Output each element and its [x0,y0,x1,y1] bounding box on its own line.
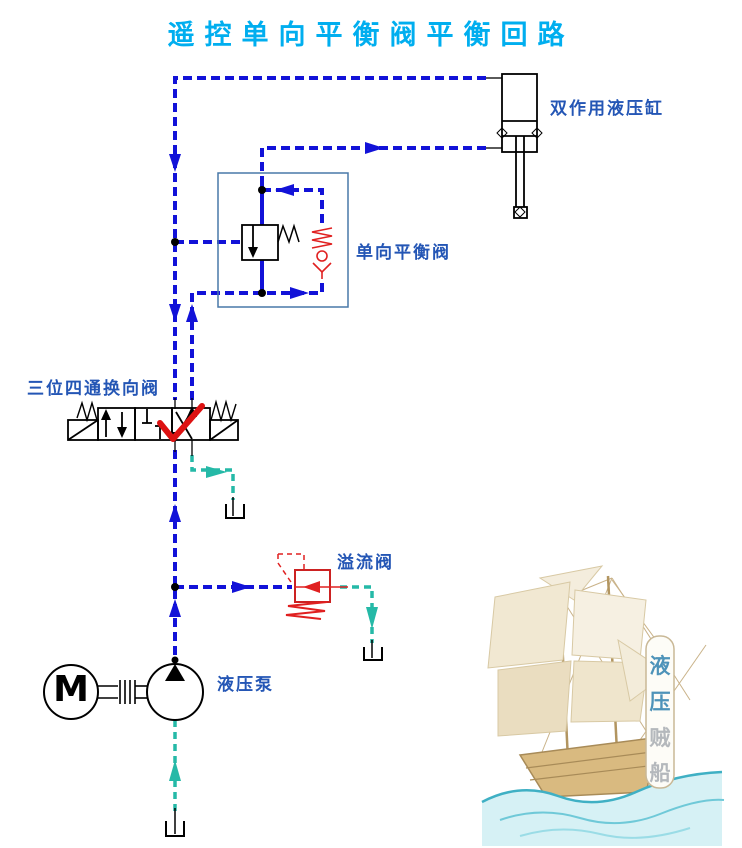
line-b-port-up [192,278,322,400]
arrow-down-icon [169,304,181,322]
spring-icon [77,403,97,420]
watermark-char: 液 [645,650,675,680]
label-pump: 液压泵 [217,670,274,695]
arrow-down-icon [366,607,378,629]
directional-valve-symbol [68,398,238,456]
arrow-right-icon [290,287,309,299]
arrow-right-icon [206,466,227,478]
watermark-char: 压 [645,686,675,716]
watermark-char: 贼 [645,722,675,752]
ship-watermark [482,566,724,846]
motor-letter: M [50,669,92,710]
teal-flow-arrows [169,466,378,781]
diagram-title: 遥控单向平衡阀平衡回路 [0,13,742,52]
label-cylinder: 双作用液压缸 [550,94,664,119]
label-balance-valve: 单向平衡阀 [356,238,451,263]
circuit-schematic [0,0,742,848]
hydraulic-circuit-page: 遥控单向平衡阀平衡回路 双作用液压缸 单向平衡阀 三位四通换向阀 溢流阀 液压泵… [0,0,742,848]
arrow-up-icon [169,504,181,522]
tank-icon [226,504,244,518]
pump-direction-triangle [165,664,185,681]
arrow-right-icon [365,142,384,154]
grip-diamond-icon [497,128,542,217]
line-t-port-to-tank [192,455,233,500]
label-directional-valve: 三位四通换向阀 [27,374,160,399]
arrow-up-icon [169,599,181,617]
red-checkmark-icon [160,406,202,439]
spring-icon [278,226,299,242]
cylinder-symbol [486,74,542,218]
arrow-up-icon [169,760,181,781]
balance-valve-body [242,225,278,260]
blue-flow-arrows [169,142,384,617]
label-relief-valve: 溢流阀 [337,548,394,573]
teal-return-lines [175,455,372,812]
spring-icon [286,602,327,619]
arrow-down-icon [169,154,181,172]
arrow-right-icon [232,581,251,593]
tank-icon [364,647,382,660]
watermark-char: 船 [645,757,675,787]
coupling-icon [98,680,147,704]
line-cylinder-bottom-run [262,148,486,176]
arrow-left-icon [275,184,294,196]
check-valve-icon [312,228,332,279]
spring-icon [211,402,236,420]
line-relief-to-tank [340,587,372,643]
arrow-up-icon [186,304,198,322]
